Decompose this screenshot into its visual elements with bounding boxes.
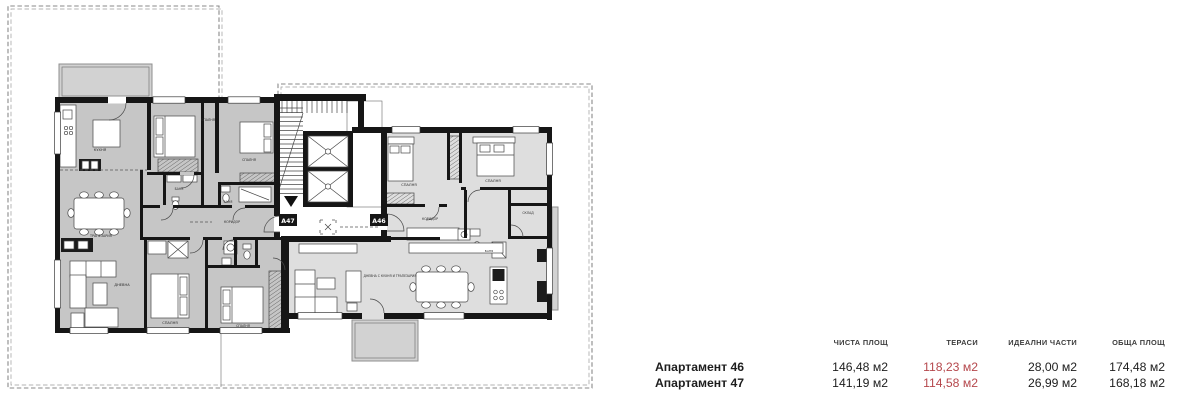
room-label: БАНЯ [485,249,493,253]
room-label: СПАЛНЯ [201,118,215,122]
floor-plan: А47 А46 КУХНЯСПАЛНЯСПАЛНЯБАНЯБАНЯКОРИДОР… [0,0,620,402]
room-label: КОРИДОР [224,220,240,224]
table-row-apartment-46: Апартамент 46 146,48 м2 118,23 м2 28,00 … [655,360,1167,376]
a47-code: А47 [281,218,294,225]
a46-code: А46 [372,218,385,225]
row-label: Апартамент 46 [655,360,805,376]
elevators [303,131,353,207]
terraces-value: 118,23 м2 [888,360,978,376]
net-area-value: 146,48 м2 [805,360,888,376]
col-header-net-area: ЧИСТА ПЛОЩ [805,338,888,347]
total-area-value: 174,48 м2 [1077,360,1165,376]
total-area-value: 168,18 м2 [1077,376,1165,392]
room-label: КУХНЯ [94,148,107,152]
room-label: СПАЛНЯ [236,324,250,328]
room-label: СПАЛНЯ [401,183,417,187]
terrace-bottom [352,320,418,361]
room-label: СПАЛНЯ [485,179,501,183]
row-label: Апартамент 47 [655,376,805,392]
stair-direction-arrow [284,196,298,207]
room-label: ДНЕВНА С КУХНЯ И ТРАПЕЗАРИЯ [364,274,417,278]
ideal-parts-value: 26,99 м2 [978,376,1077,392]
terraces-value: 114,58 м2 [888,376,978,392]
net-area-value: 141,19 м2 [805,376,888,392]
room-label: СКЛАД [522,211,534,215]
room-label: СПАЛНЯ [242,158,256,162]
room-label: ДНЕВНА [114,283,130,287]
room-label: БАНЯ [224,200,233,204]
page: А47 А46 КУХНЯСПАЛНЯСПАЛНЯБАНЯБАНЯКОРИДОР… [0,0,1190,402]
floor-plan-svg: А47 А46 КУХНЯСПАЛНЯСПАЛНЯБАНЯБАНЯКОРИДОР… [0,0,620,402]
col-header-total-area: ОБЩА ПЛОЩ [1077,338,1165,347]
room-label: КОРИДОР [422,217,438,221]
table-header-row: ЧИСТА ПЛОЩ ТЕРАСИ ИДЕАЛНИ ЧАСТИ ОБЩА ПЛО… [655,338,1167,347]
room-label: ТРАПЕЗАРИЯ [89,234,112,238]
ideal-parts-value: 28,00 м2 [978,360,1077,376]
room-label: БАНЯ [175,187,184,191]
area-table: ЧИСТА ПЛОЩ ТЕРАСИ ИДЕАЛНИ ЧАСТИ ОБЩА ПЛО… [655,334,1167,391]
room-label: СПАЛНЯ [162,321,178,325]
table-row-apartment-47: Апартамент 47 141,19 м2 114,58 м2 26,99 … [655,376,1167,392]
terrace-top-left [59,64,152,99]
col-header-ideal-parts: ИДЕАЛНИ ЧАСТИ [978,338,1077,347]
col-header-terraces: ТЕРАСИ [888,338,978,347]
